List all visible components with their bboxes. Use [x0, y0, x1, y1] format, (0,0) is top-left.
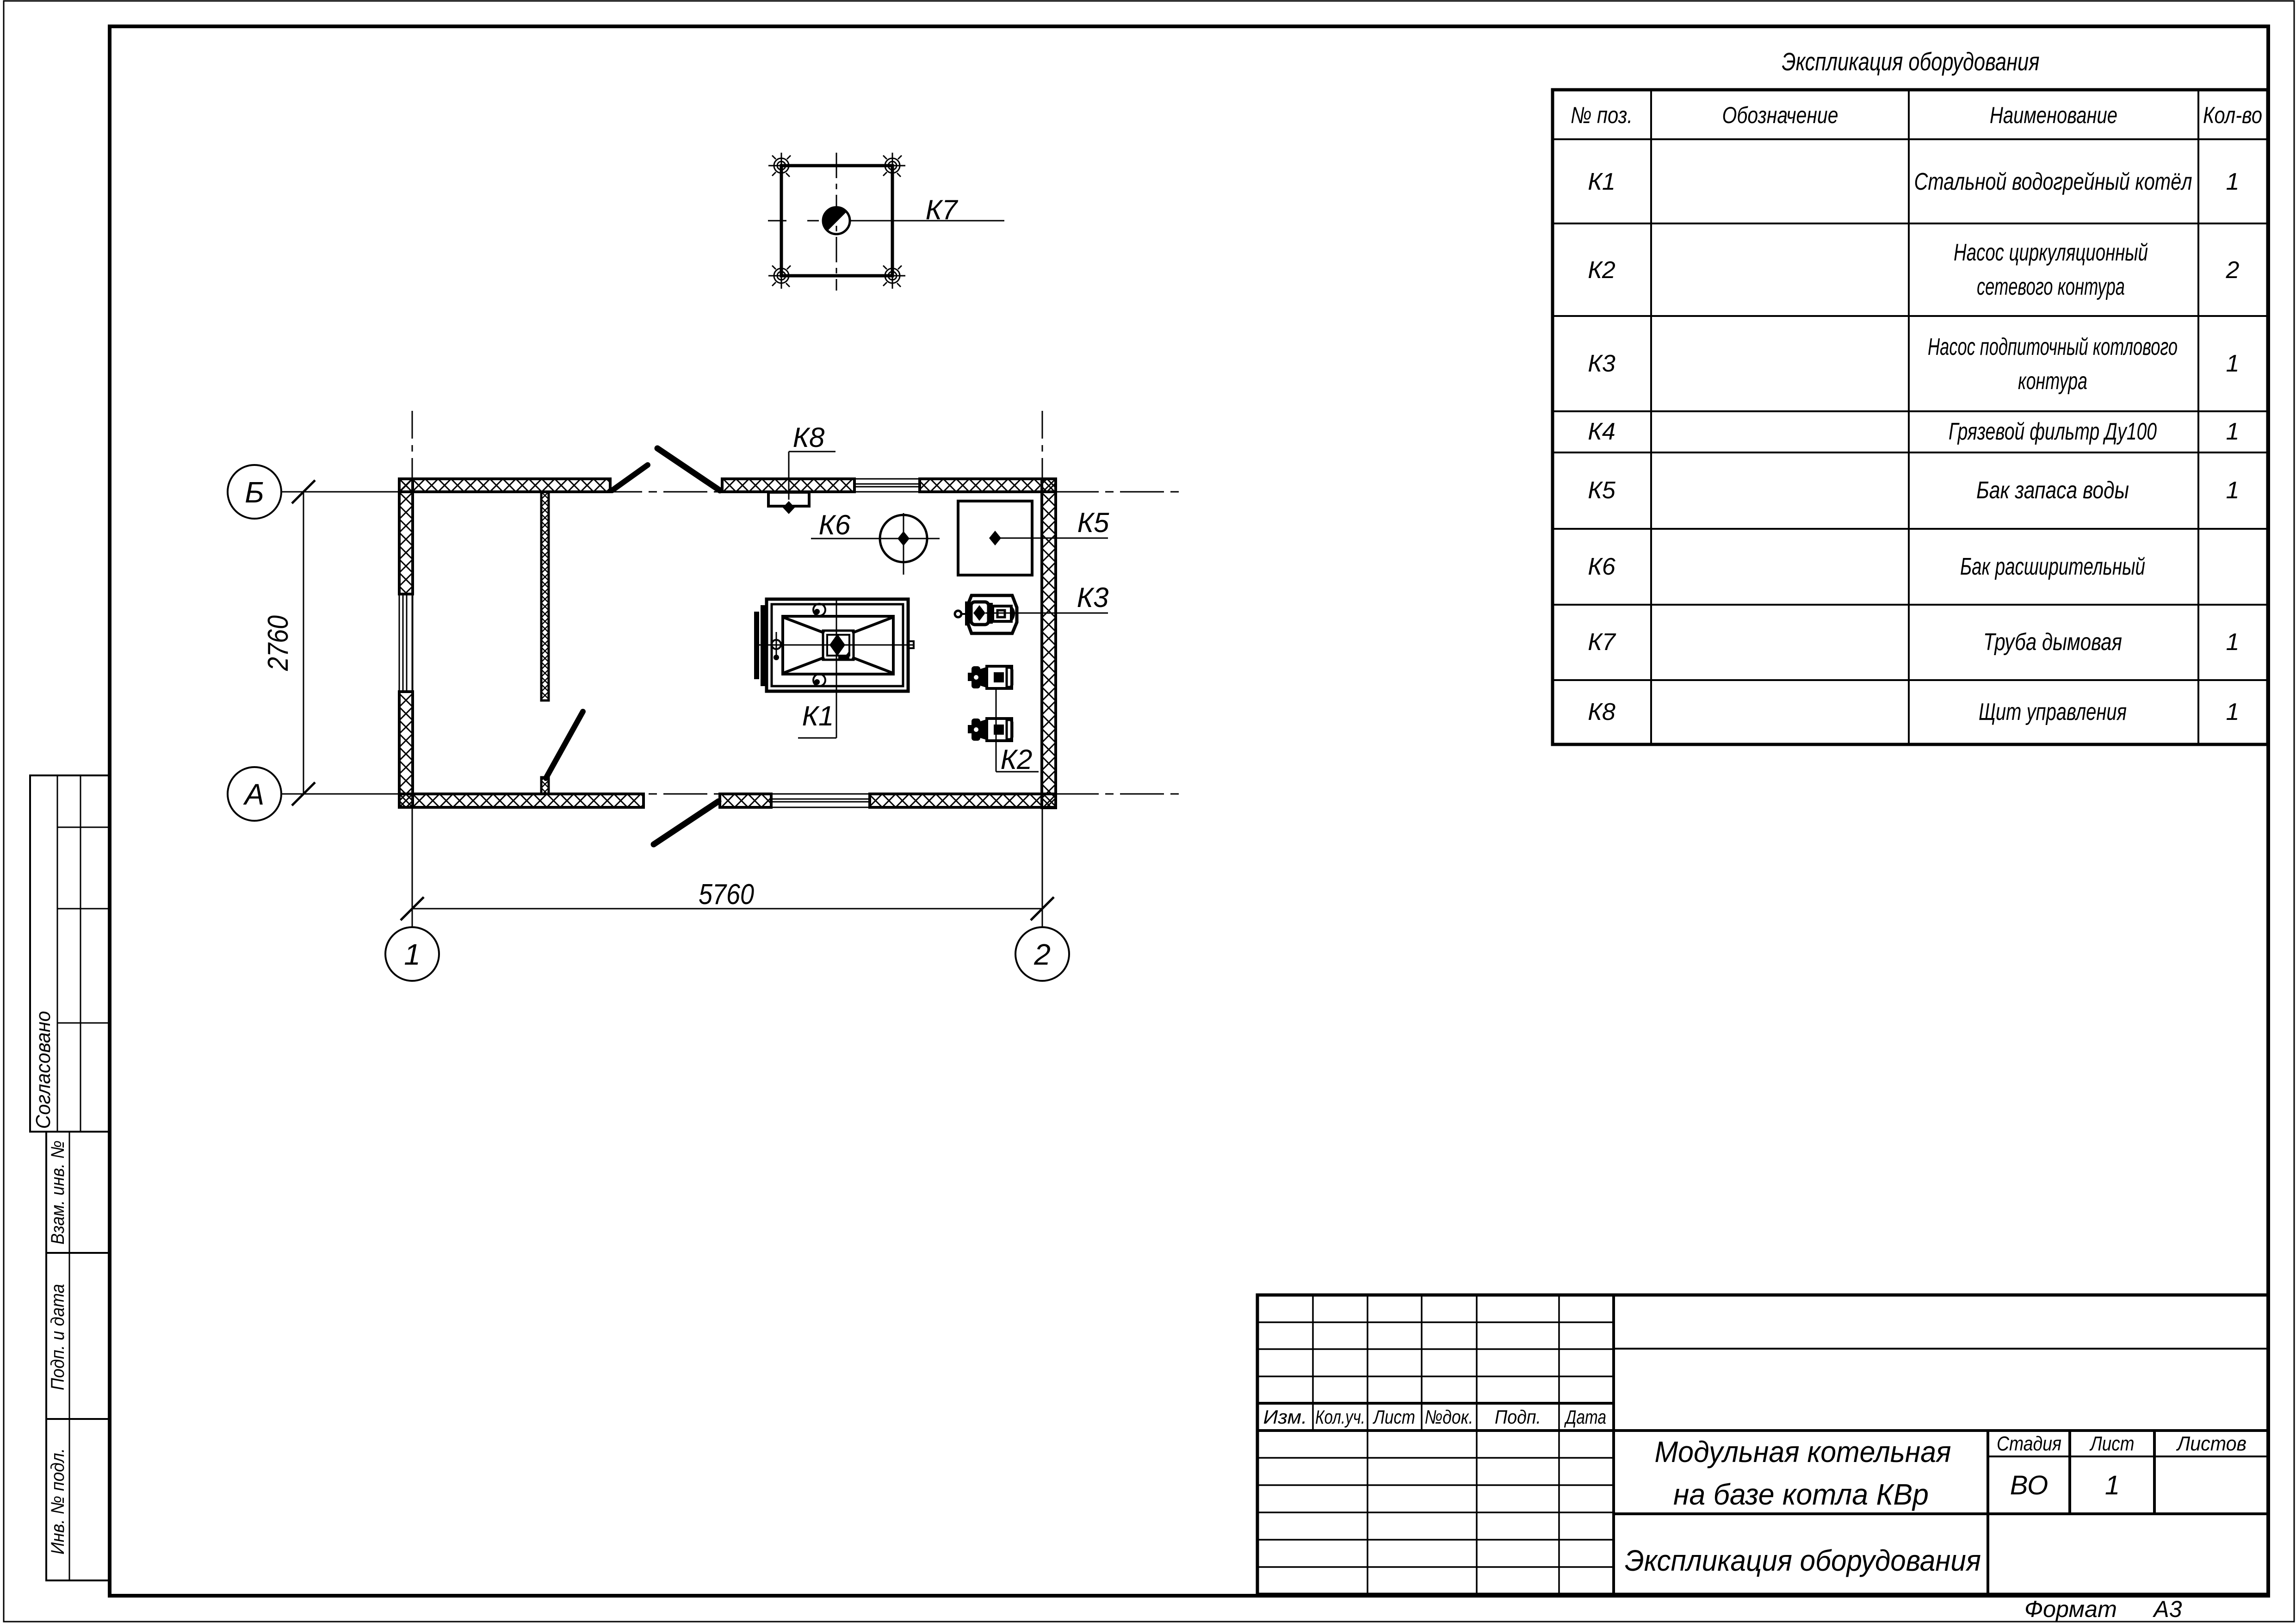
- svg-text:контура: контура: [2018, 368, 2087, 395]
- svg-text:Труба дымовая: Труба дымовая: [1983, 629, 2122, 656]
- svg-text:5760: 5760: [699, 879, 754, 911]
- svg-text:К7: К7: [926, 194, 959, 225]
- svg-text:К3: К3: [1588, 350, 1615, 377]
- svg-text:Согласовано: Согласовано: [32, 1011, 55, 1129]
- svg-text:1: 1: [2226, 477, 2240, 504]
- svg-text:на базе котла КВр: на базе котла КВр: [1673, 1478, 1929, 1511]
- svg-text:Кол.уч.: Кол.уч.: [1315, 1406, 1365, 1428]
- svg-text:К1: К1: [802, 700, 834, 731]
- svg-text:Лист: Лист: [2089, 1432, 2135, 1455]
- svg-text:К6: К6: [819, 509, 851, 540]
- svg-text:Насос циркуляционный: Насос циркуляционный: [1954, 239, 2148, 266]
- svg-text:К4: К4: [1588, 418, 1615, 445]
- svg-text:К1: К1: [1588, 168, 1615, 195]
- svg-text:К8: К8: [1588, 699, 1615, 725]
- svg-text:1: 1: [2226, 418, 2240, 445]
- svg-text:ВО: ВО: [2010, 1470, 2048, 1500]
- svg-text:1: 1: [2226, 350, 2240, 377]
- svg-text:К7: К7: [1588, 629, 1616, 656]
- svg-text:Обозначение: Обозначение: [1722, 102, 1838, 128]
- svg-text:Листов: Листов: [2176, 1432, 2246, 1455]
- svg-text:Взам. инв. №: Взам. инв. №: [48, 1140, 68, 1245]
- svg-text:Грязевой фильтр Ду100: Грязевой фильтр Ду100: [1949, 418, 2157, 445]
- svg-text:1: 1: [2105, 1470, 2120, 1500]
- svg-text:Щит управления: Щит управления: [1979, 699, 2127, 725]
- svg-text:Изм.: Изм.: [1263, 1406, 1307, 1428]
- svg-text:К2: К2: [1588, 257, 1615, 284]
- svg-text:Дата: Дата: [1564, 1406, 1606, 1428]
- svg-text:Экспликация оборудования: Экспликация оборудования: [1625, 1544, 1981, 1577]
- svg-text:А3: А3: [2152, 1596, 2182, 1622]
- svg-text:Подп.: Подп.: [1495, 1406, 1541, 1428]
- svg-text:1: 1: [2226, 168, 2240, 195]
- svg-text:№док.: №док.: [1425, 1406, 1473, 1428]
- svg-text:1: 1: [404, 938, 421, 971]
- svg-text:Формат: Формат: [2024, 1596, 2117, 1622]
- svg-text:К2: К2: [1001, 744, 1033, 775]
- svg-text:Насос подпиточный котлового: Насос подпиточный котлового: [1928, 334, 2178, 360]
- svg-text:Стадия: Стадия: [1997, 1432, 2061, 1455]
- svg-text:Стальной водогрейный котёл: Стальной водогрейный котёл: [1914, 168, 2192, 195]
- svg-text:Наименование: Наименование: [1990, 102, 2117, 128]
- svg-text:Инв. № подл.: Инв. № подл.: [48, 1448, 68, 1555]
- svg-text:К3: К3: [1077, 582, 1109, 613]
- svg-text:Б: Б: [245, 476, 264, 509]
- svg-text:Бак запаса воды: Бак запаса воды: [1976, 477, 2129, 504]
- svg-text:1: 1: [2226, 699, 2240, 725]
- svg-text:Подп. и дата: Подп. и дата: [48, 1284, 68, 1390]
- svg-text:2760: 2760: [262, 615, 294, 671]
- svg-text:1: 1: [2226, 629, 2240, 656]
- svg-text:К5: К5: [1077, 507, 1109, 538]
- svg-text:К8: К8: [793, 422, 825, 453]
- svg-text:А: А: [243, 778, 265, 811]
- svg-text:сетевого контура: сетевого контура: [1977, 273, 2125, 300]
- svg-text:Бак расширительный: Бак расширительный: [1960, 553, 2145, 580]
- svg-text:К6: К6: [1588, 553, 1615, 580]
- svg-text:№ поз.: № поз.: [1571, 102, 1633, 128]
- svg-text:Лист: Лист: [1373, 1406, 1415, 1428]
- svg-text:2: 2: [1034, 938, 1051, 971]
- svg-text:Экспликация оборудования: Экспликация оборудования: [1782, 47, 2040, 76]
- svg-text:2: 2: [2226, 257, 2240, 284]
- svg-text:Кол-во: Кол-во: [2203, 102, 2262, 128]
- svg-text:Модульная котельная: Модульная котельная: [1655, 1435, 1951, 1468]
- svg-text:К5: К5: [1588, 477, 1616, 504]
